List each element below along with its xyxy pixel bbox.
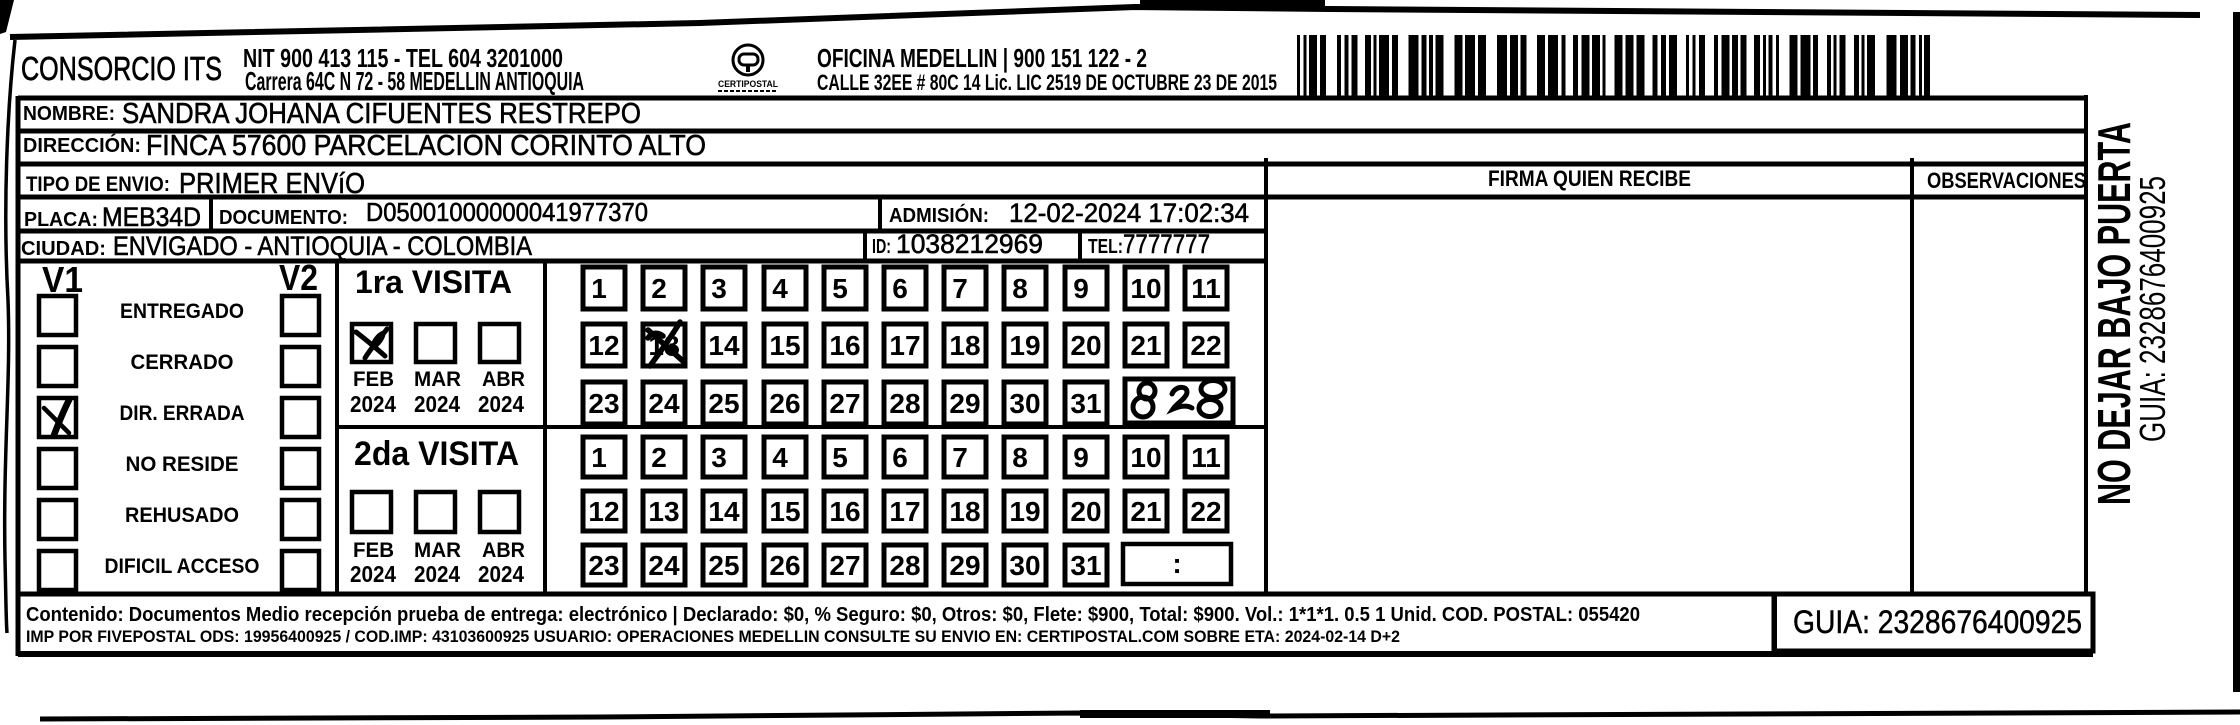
svg-text:CERRADO: CERRADO [131,351,234,374]
svg-text:30: 30 [1009,550,1040,581]
svg-text:15: 15 [769,496,800,527]
svg-text:DIFICIL ACCESO: DIFICIL ACCESO [105,555,260,578]
svg-text:IMP POR FIVEPOSTAL ODS: 199564: IMP POR FIVEPOSTAL ODS: 19956400925 / CO… [26,627,1400,646]
svg-text:FEB: FEB [353,368,394,391]
svg-text:OBSERVACIONES: OBSERVACIONES [1927,168,2086,193]
svg-text:11: 11 [1191,442,1221,473]
svg-text:MAR: MAR [414,539,461,562]
svg-text:13: 13 [648,496,679,527]
svg-text:19: 19 [1009,496,1040,527]
svg-text:CIUDAD:: CIUDAD: [21,238,106,260]
svg-text:TIPO DE ENVIO:: TIPO DE ENVIO: [26,173,170,196]
svg-text:CALLE 32EE # 80C 14 Lic. LIC 2: CALLE 32EE # 80C 14 Lic. LIC 2519 DE OCT… [817,70,1277,95]
svg-text:9: 9 [1073,273,1089,304]
svg-text:29: 29 [949,388,980,419]
svg-text:28: 28 [889,550,920,581]
svg-text:6: 6 [892,273,908,304]
svg-text:18: 18 [949,496,980,527]
svg-text:NO RESIDE: NO RESIDE [126,453,239,476]
svg-text:DIRECCIÓN:: DIRECCIÓN: [23,133,141,157]
svg-text:4: 4 [772,273,788,304]
svg-text:8: 8 [1012,442,1028,473]
svg-text:14: 14 [708,330,740,361]
svg-text:1: 1 [591,273,607,304]
svg-text:CERTIPOSTAL: CERTIPOSTAL [718,79,778,89]
svg-text:8: 8 [1012,273,1028,304]
svg-text:27: 27 [829,550,860,581]
svg-text:25: 25 [708,550,739,581]
svg-text:5: 5 [832,273,848,304]
svg-text:TEL:: TEL: [1088,236,1123,258]
svg-text:1ra VISITA: 1ra VISITA [355,264,512,300]
svg-text:GUIA: 2328676400925: GUIA: 2328676400925 [1793,604,2082,640]
svg-text:1: 1 [591,442,607,473]
svg-text:22: 22 [1190,496,1221,527]
svg-text:FIRMA QUIEN RECIBE: FIRMA QUIEN RECIBE [1488,166,1691,191]
svg-text:ADMISIÓN:: ADMISIÓN: [889,203,989,227]
svg-text:1038212969: 1038212969 [896,229,1043,259]
svg-text:2: 2 [651,442,667,473]
svg-text:7: 7 [952,442,968,473]
svg-text:SANDRA JOHANA CIFUENTES RESTRE: SANDRA JOHANA CIFUENTES RESTREPO [122,98,641,130]
svg-text:6: 6 [892,442,908,473]
svg-text:4: 4 [772,442,788,473]
svg-text:2024: 2024 [478,391,524,417]
svg-text:29: 29 [949,550,980,581]
svg-text:2da VISITA: 2da VISITA [354,435,519,473]
svg-text:10: 10 [1130,442,1161,473]
svg-text:7777777: 7777777 [1123,229,1210,259]
svg-text:31: 31 [1070,388,1101,419]
svg-text:PLACA:: PLACA: [24,209,98,231]
svg-text:11: 11 [1191,273,1221,304]
svg-text:17: 17 [889,496,920,527]
svg-text:MAR: MAR [414,368,461,391]
svg-text:ID:: ID: [872,236,891,258]
svg-text:ENVIGADO - ANTIOQUIA - COLOMBI: ENVIGADO - ANTIOQUIA - COLOMBIA [113,231,532,261]
svg-text:DIR. ERRADA: DIR. ERRADA [120,402,245,425]
svg-text:MEB34D: MEB34D [102,202,201,232]
svg-text:30: 30 [1009,388,1040,419]
svg-text:23: 23 [588,388,619,419]
svg-text:3: 3 [711,442,727,473]
svg-text:Carrera 64C N 72 - 58 MEDELLIN: Carrera 64C N 72 - 58 MEDELLIN ANTIOQUIA [245,66,584,96]
svg-text:21: 21 [1130,496,1161,527]
svg-text:V2: V2 [279,257,318,298]
svg-text:ABR: ABR [482,539,525,562]
svg-text:25: 25 [708,388,739,419]
svg-text:2024: 2024 [350,391,396,417]
svg-text:Contenido: Documentos Medio re: Contenido: Documentos Medio recepción pr… [26,604,1640,626]
svg-text:NOMBRE:: NOMBRE: [23,103,115,125]
svg-text:7: 7 [952,273,968,304]
svg-text:2024: 2024 [350,561,396,587]
svg-text:REHUSADO: REHUSADO [125,504,239,527]
svg-text:21: 21 [1130,330,1161,361]
svg-text:24: 24 [648,550,680,581]
svg-text:12-02-2024 17:02:34: 12-02-2024 17:02:34 [1009,198,1249,228]
svg-text:26: 26 [769,550,800,581]
svg-text:ENTREGADO: ENTREGADO [120,300,244,323]
svg-text:28: 28 [889,388,920,419]
svg-text:26: 26 [769,388,800,419]
svg-text:12: 12 [588,330,619,361]
svg-text:CONSORCIO ITS: CONSORCIO ITS [21,50,222,87]
svg-text:DOCUMENTO:: DOCUMENTO: [219,207,348,229]
svg-text:17: 17 [889,330,920,361]
svg-text:3: 3 [711,273,727,304]
svg-text:12: 12 [588,496,619,527]
svg-text:14: 14 [708,496,740,527]
svg-text::: : [1172,548,1181,579]
svg-text:OFICINA MEDELLIN | 900 151 122: OFICINA MEDELLIN | 900 151 122 - 2 [817,43,1147,73]
svg-text:16: 16 [829,496,860,527]
svg-text:20: 20 [1070,496,1101,527]
svg-text:FEB: FEB [353,539,394,562]
svg-text:ABR: ABR [482,368,525,391]
svg-text:9: 9 [1073,442,1089,473]
svg-text:2024: 2024 [414,561,460,587]
svg-text:10: 10 [1130,273,1161,304]
svg-text:31: 31 [1070,550,1101,581]
svg-text:18: 18 [949,330,980,361]
svg-text:PRIMER ENVíO: PRIMER ENVíO [179,168,365,200]
svg-text:22: 22 [1190,330,1221,361]
svg-text:FINCA 57600 PARCELACION CORINT: FINCA 57600 PARCELACION CORINTO ALTO [146,130,706,162]
svg-text:D05001000000041977370: D05001000000041977370 [366,197,648,227]
svg-text:2: 2 [651,273,667,304]
svg-text:23: 23 [588,550,619,581]
svg-text:19: 19 [1009,330,1040,361]
svg-text:GUIA: 2328676400925: GUIA: 2328676400925 [2132,176,2173,442]
svg-text:2024: 2024 [414,391,460,417]
svg-text:20: 20 [1070,330,1101,361]
svg-text:5: 5 [832,442,848,473]
svg-text:27: 27 [829,388,860,419]
svg-text:24: 24 [648,388,680,419]
svg-text:2024: 2024 [478,561,524,587]
svg-text:15: 15 [769,330,800,361]
svg-text:16: 16 [829,330,860,361]
